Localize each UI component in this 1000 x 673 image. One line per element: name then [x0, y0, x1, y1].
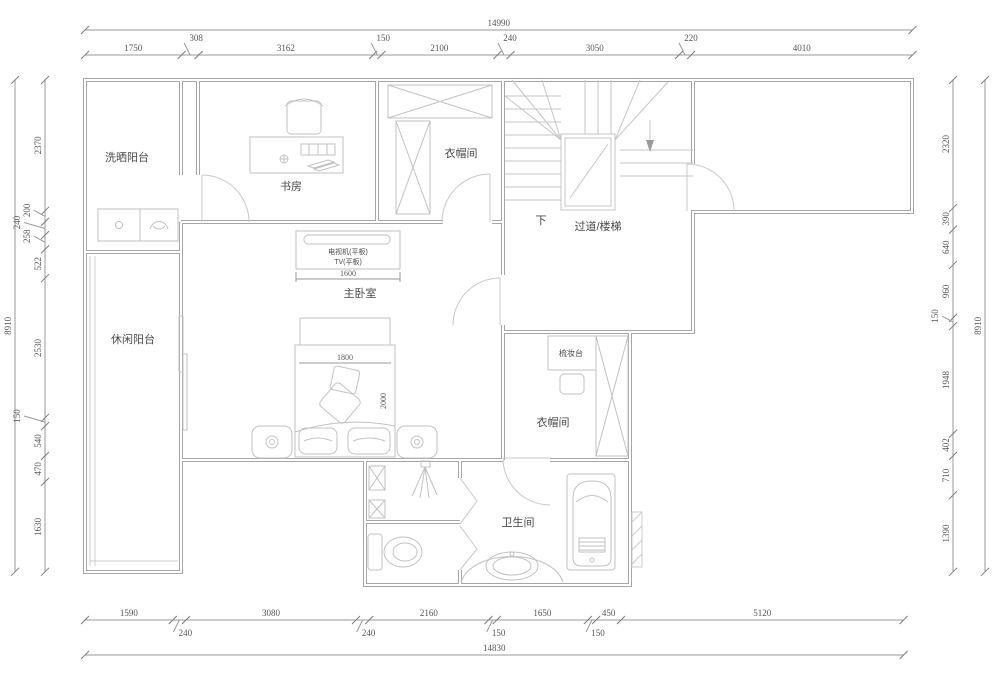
label-laundry-balcony: 洗晒阳台	[105, 150, 149, 164]
leisure-balcony-glazing	[90, 256, 178, 566]
dim-label: 2160	[420, 608, 439, 618]
dim-label: 540	[33, 434, 43, 448]
shower-head-icon	[412, 461, 437, 498]
tub-drain	[590, 558, 594, 562]
dim-label: 960	[941, 284, 951, 298]
stair-direction-arrow	[646, 120, 654, 152]
dim-mark	[184, 43, 190, 55]
vanity-counter	[461, 557, 563, 583]
papers	[308, 160, 339, 171]
wall-lines-inner	[85, 80, 912, 585]
dim-label: 308	[189, 33, 203, 43]
dim-label: 240	[179, 628, 193, 638]
dim-label: 150	[591, 628, 605, 638]
dim-label: 240	[12, 215, 22, 229]
toilet-bowl	[384, 537, 422, 567]
dim-label: 2530	[33, 338, 43, 357]
dim-label: 150	[12, 409, 22, 423]
dim-label: 258	[22, 229, 32, 243]
dim-label: 200	[22, 203, 32, 217]
dim-label: 1650	[533, 608, 552, 618]
dim-label: 8910	[973, 316, 983, 335]
bed-cushion-2	[318, 381, 362, 425]
dim-label: 4010	[793, 43, 812, 53]
dim-label: 3080	[262, 608, 281, 618]
floor-plan-page: 洗晒阳台 书房 衣帽间 下 过道/楼梯 主卧室 休闲阳台 梳妆台 衣帽间 卫生间…	[0, 0, 1000, 673]
label-tv-width: 1600	[340, 269, 356, 278]
dim-label: 3050	[586, 43, 605, 53]
desk-chair	[287, 101, 321, 134]
stair-treads-left	[505, 96, 561, 200]
dim-label: 1948	[941, 370, 951, 389]
bathtub-outer	[567, 474, 615, 570]
nightstand-left	[252, 426, 292, 458]
study-furniture	[250, 99, 343, 173]
basin-faucet	[510, 552, 514, 556]
label-dressing-table: 梳妆台	[559, 348, 583, 358]
tv-panel	[304, 235, 390, 244]
door-balcony-study	[202, 175, 249, 222]
dim-label: 3162	[277, 43, 295, 53]
door-master-bedroom	[453, 278, 500, 325]
label-bed-width: 1800	[337, 353, 353, 362]
nightstand-right	[397, 426, 437, 458]
label-master-bedroom: 主卧室	[344, 286, 377, 300]
dressing-stool	[560, 374, 584, 394]
dim-label: 2100	[430, 43, 449, 53]
dim-label: 1390	[941, 524, 951, 543]
washing-machine-icon	[150, 222, 168, 230]
label-hallway-stairs: 过道/楼梯	[574, 219, 621, 233]
doors	[179, 164, 734, 570]
bathtub	[567, 474, 615, 570]
dim-label: 522	[33, 257, 43, 271]
dim-label: 240	[503, 33, 517, 43]
bathtub-wave	[576, 496, 608, 503]
toilet-tank	[368, 534, 382, 570]
dim-label: 1590	[120, 608, 139, 618]
door-shower-bifold	[460, 478, 477, 570]
sink-drain	[116, 222, 123, 229]
chair-back	[285, 99, 323, 106]
label-bathroom: 卫生间	[502, 515, 535, 529]
label-tv-cabinet: 电视机(平板)	[328, 247, 368, 256]
wall-lines-outer	[85, 80, 912, 585]
dim-label: 5120	[753, 608, 772, 618]
label-bed-length: 2000	[379, 393, 388, 409]
bathtub-inner	[573, 481, 611, 566]
floor-plan-canvas: 洗晒阳台 书房 衣帽间 下 过道/楼梯 主卧室 休闲阳台 梳妆台 衣帽间 卫生间…	[0, 0, 1000, 673]
walls	[85, 80, 912, 585]
dim-label: 390	[941, 212, 951, 226]
dim-label: 8910	[3, 316, 13, 335]
dim-label: 2370	[33, 136, 43, 155]
bed-cushion-1	[330, 366, 360, 395]
dim-mark	[24, 416, 45, 422]
label-cloakroom-right: 衣帽间	[537, 415, 570, 429]
stair-winders-top-left	[505, 80, 561, 140]
label-cloakroom-top: 衣帽间	[445, 146, 478, 160]
door-terrace-room	[687, 164, 734, 211]
dim-label: 640	[941, 240, 951, 254]
dim-label: 470	[33, 462, 43, 476]
label-study: 书房	[280, 180, 302, 193]
dim-label: 150	[377, 33, 391, 43]
wall-hatch-strip	[632, 512, 642, 567]
dim-label: 14990	[487, 18, 510, 28]
door-bathroom	[503, 458, 550, 505]
dim-mark	[679, 43, 685, 55]
dim-label: 240	[362, 628, 376, 638]
toilet	[368, 534, 422, 570]
stair-treads-right	[620, 150, 693, 176]
label-stairs-down: 下	[536, 215, 547, 227]
dim-label: 710	[941, 468, 951, 482]
dim-label: 1750	[124, 43, 143, 53]
dim-label: 402	[941, 438, 951, 452]
dim-label: 150	[492, 628, 506, 638]
stair-treads-top	[585, 80, 668, 140]
label-tv: TV(平板)	[334, 257, 362, 266]
stair-void-railing	[561, 134, 615, 210]
vanity-basin	[461, 552, 563, 582]
label-leisure-balcony: 休闲阳台	[111, 332, 155, 346]
bed-bench	[300, 318, 390, 345]
door-cloakroom-top	[442, 174, 490, 222]
dim-label: 1630	[33, 517, 43, 536]
dim-label: 220	[684, 33, 698, 43]
dim-label: 2320	[941, 135, 951, 154]
dim-mark	[34, 210, 45, 216]
staircase	[505, 80, 693, 210]
bed-throw	[295, 422, 395, 432]
dim-label: 14830	[483, 643, 506, 653]
laundry-fixtures	[98, 209, 178, 241]
dim-label: 150	[930, 309, 940, 323]
dim-label: 450	[602, 608, 616, 618]
